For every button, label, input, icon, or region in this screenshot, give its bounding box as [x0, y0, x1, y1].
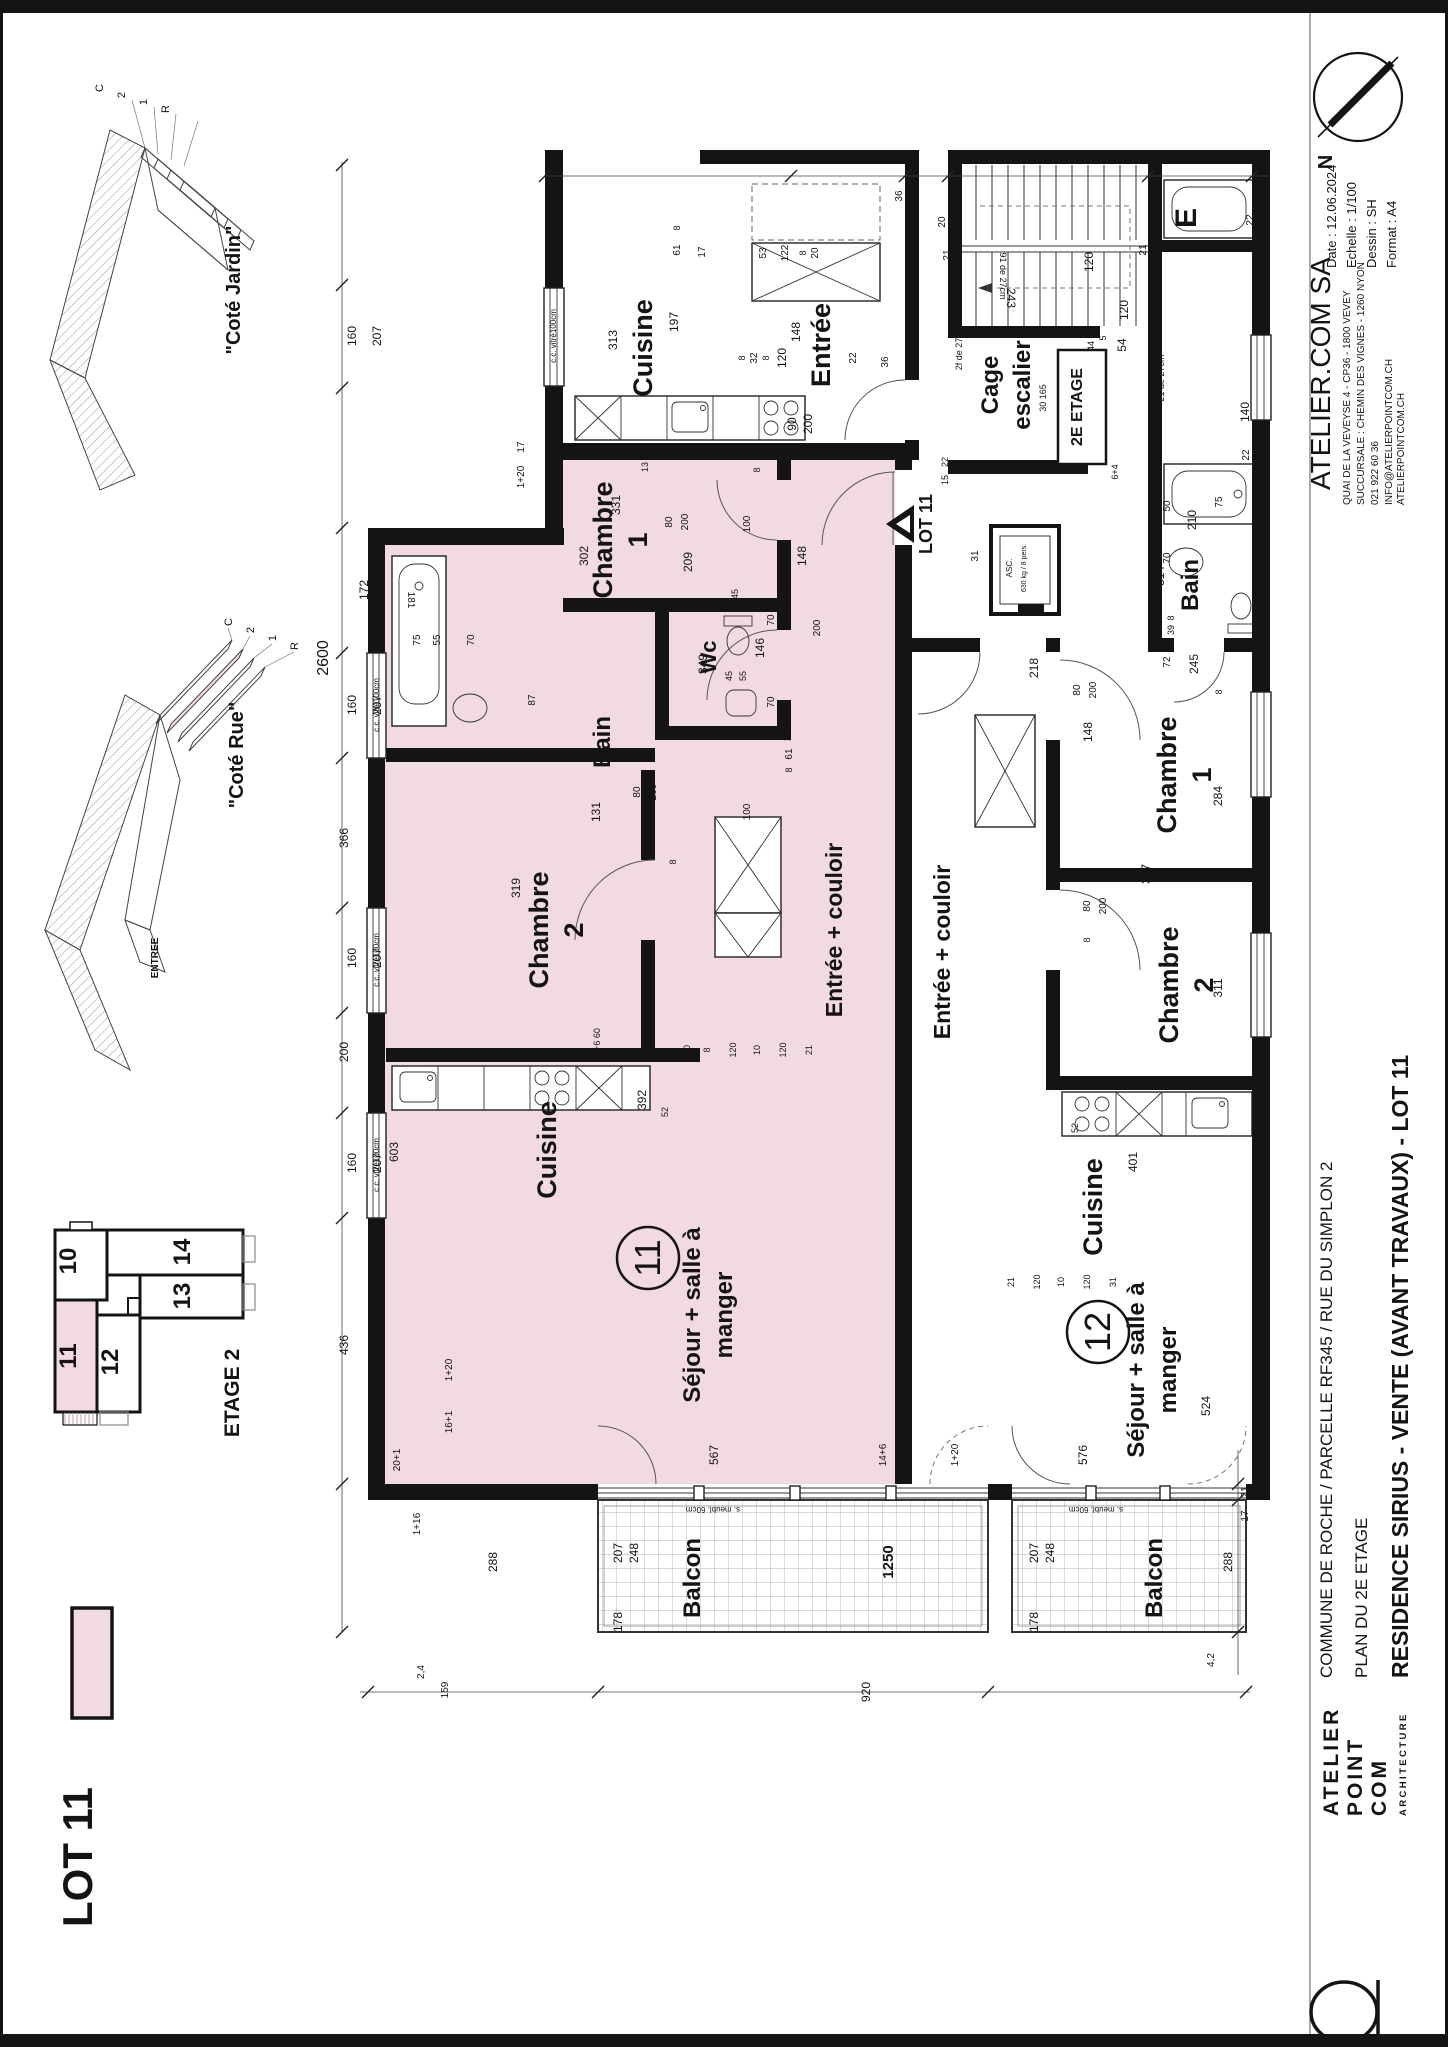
dimension-label: 70	[466, 634, 477, 646]
dimension-label: 8	[784, 767, 794, 772]
plan-note: 630 kg / 8 pers.	[1021, 544, 1028, 592]
dimension-label: 200	[801, 414, 815, 434]
dimension-label: 21	[942, 249, 953, 261]
dimension-label: 80	[632, 786, 643, 798]
drawing-scale: Echelle : 1/100	[1344, 182, 1359, 268]
dimension-label: 140	[1238, 402, 1252, 422]
dimension-label: 160	[345, 695, 359, 715]
dimension-label: 16+1	[444, 1410, 455, 1433]
dimension-label: 120	[775, 348, 789, 368]
dimension-label: 14+6	[878, 1443, 889, 1466]
dimension-label: 349	[696, 654, 710, 674]
dimension-label: 331	[609, 495, 623, 515]
dimension-label: 217	[1047, 1012, 1061, 1032]
dimension-label: 80	[1082, 900, 1093, 912]
plan-note: 30 165	[1038, 384, 1048, 412]
dimension-label: 61	[672, 244, 683, 256]
room-label: manger	[711, 1272, 738, 1359]
legend-swatch	[72, 1608, 112, 1718]
dimension-label: 54	[1115, 338, 1129, 352]
dimension-label: 8	[1214, 689, 1224, 694]
architect-logo: ATELIER POINT COM ARCHITECTURE	[1311, 1707, 1409, 2044]
room-label: manger	[1155, 1327, 1182, 1414]
dimension-label: 248	[627, 1543, 641, 1563]
dimension-label: 75	[1214, 496, 1225, 508]
dimension-label: 200	[812, 619, 823, 636]
dimension-label: 120	[1082, 1274, 1092, 1289]
dimension-label: 288	[486, 1552, 500, 1572]
lot11-pink-area	[385, 460, 895, 1484]
dimension-label: 4,2	[1206, 1653, 1217, 1667]
axon-caption-jardin: "Coté Jardin"	[223, 226, 245, 355]
dimension-label: 148	[1081, 722, 1095, 742]
kitchen-counter-lot12	[1062, 1092, 1252, 1136]
dimension-label: 2,4	[416, 1665, 427, 1679]
unit-badge-number: 11	[627, 1239, 668, 1276]
dimension-label: 22	[1241, 449, 1252, 461]
dimension-label: 17	[516, 441, 527, 453]
dimension-label: 100	[742, 515, 753, 532]
dimension-label: 80	[682, 1045, 692, 1055]
room-label: 1	[1187, 767, 1217, 782]
keyplan-label-13: 13	[169, 1283, 196, 1310]
room-label: Entrée	[806, 303, 836, 387]
dimension-label: 20	[937, 216, 948, 228]
room-label: Bain	[1177, 559, 1204, 611]
company-address1: QUAI DE LA VEVEYSE 4 - CP36 - 1800 VEVEY	[1342, 290, 1353, 505]
dimension-label: 245	[1187, 654, 1201, 674]
company-address2: SUCCURSALE : CHEMIN DES VIGNES - 1260 NY…	[1356, 262, 1367, 505]
dimension-label: 200	[1098, 897, 1109, 914]
axon-floor-label: R	[289, 642, 301, 650]
dimension-label: 36	[894, 190, 905, 202]
plan-note: ASC.	[1005, 559, 1014, 578]
dimension-label: 2600	[315, 640, 332, 676]
dimension-label: 22	[848, 352, 859, 364]
logo-line2: POINT	[1344, 1737, 1367, 1816]
room-label: Entrée + couloir	[821, 843, 847, 1018]
dimension-label: 17	[1240, 1510, 1251, 1522]
window	[1251, 933, 1271, 1037]
legend: LOT 11	[54, 1608, 112, 1927]
room-label: 1	[623, 532, 653, 547]
dimension-label: 567	[707, 1445, 721, 1465]
dimension-label: 1+20	[516, 465, 527, 488]
dimension-label: 80	[664, 516, 675, 528]
dimension-label: 8	[782, 721, 792, 726]
dimension-label: 20+1	[392, 1448, 403, 1471]
dimension-label: 311	[1211, 978, 1225, 997]
company-web: ATELIERPOINTCOM.CH	[1396, 393, 1407, 505]
dimension-label: 36	[880, 356, 891, 368]
dimension-label: 302	[577, 546, 591, 566]
keyplan-label-11: 11	[55, 1343, 82, 1368]
plan-note: 2f de 27cm	[954, 326, 964, 371]
axon-floor-label: C	[223, 618, 235, 626]
dimension-label: 22	[940, 457, 950, 467]
dimension-label: 44	[1086, 341, 1096, 351]
dimension-label: 172	[357, 580, 371, 600]
room-label: Cage	[977, 356, 1004, 415]
wardrobe-entree-top	[752, 184, 880, 301]
logo-line1: ATELIER	[1320, 1707, 1343, 1816]
dimension-label: 4+6 60	[592, 1028, 602, 1056]
title-block: ATELIER.COM SA QUAI DE LA VEVEYSE 4 - CP…	[1305, 165, 1407, 505]
plan-note: s. meubl. 60cm	[1069, 1505, 1124, 1514]
dimension-label: 17	[697, 246, 708, 258]
drawing-sheet: 2E ETAGE LOT 11 CuisineEntréeCageescalie…	[0, 0, 1448, 2047]
room-label: Chambre	[524, 871, 554, 988]
dimension-label: 22	[1148, 449, 1159, 461]
dimension-label: 20	[782, 731, 792, 741]
dimension-label: 436	[337, 1335, 351, 1355]
dimension-label: 21	[548, 466, 559, 478]
dimension-label: 248	[1043, 1543, 1057, 1563]
dimension-label: 19	[780, 462, 791, 474]
dimension-label: 45	[730, 589, 740, 599]
plan-note: 91 de 27cm	[998, 252, 1008, 299]
dimension-label: 70	[766, 614, 777, 626]
dimension-label: 207	[611, 1543, 625, 1563]
dimension-label: 90	[785, 417, 799, 431]
room-label: Chambre	[1154, 926, 1184, 1043]
dimension-label: 87	[527, 694, 538, 706]
axon-floor-label: 1	[267, 635, 279, 641]
dimension-label: 200	[648, 783, 659, 800]
project-location: COMMUNE DE ROCHE / PARCELLE RF345 / RUE …	[1317, 1162, 1336, 1678]
axon-floor-label: R	[160, 105, 172, 113]
dimension-label: 8	[1166, 615, 1176, 620]
room-label: Bain	[589, 716, 616, 768]
dimension-label: 1+20	[444, 1358, 455, 1381]
toilet-bain-lot12	[1228, 593, 1254, 633]
legend-label: LOT 11	[54, 1787, 101, 1927]
dimension-label: 207	[370, 326, 384, 346]
room-label: Balcon	[1141, 1538, 1168, 1618]
axon-floor-label: 1	[138, 99, 150, 105]
room-label: Balcon	[679, 1538, 706, 1618]
dimension-label: 178	[1027, 1612, 1041, 1632]
axon-cote-jardin: "Coté Jardin"	[50, 100, 254, 490]
dimension-label: 8	[798, 250, 808, 255]
dimension-label: 120	[1032, 1274, 1042, 1289]
axon-floor-label: C	[94, 84, 106, 92]
axon-entry-label: ENTREE	[150, 937, 161, 978]
room-label: escalier	[1009, 340, 1036, 429]
keyplan-label-14: 14	[169, 1238, 196, 1265]
logo-line3: COM	[1368, 1758, 1391, 1816]
dimension-label: 52	[660, 1107, 670, 1117]
room-label: Cuisine	[628, 299, 658, 397]
dimension-label: 387	[1139, 864, 1153, 884]
dimension-label: 120	[1117, 300, 1131, 320]
dimension-label: 576	[1076, 1445, 1090, 1465]
unit-badge-number: 12	[1077, 1312, 1118, 1352]
dimension-label: 39	[1166, 625, 1176, 635]
dimension-label: 8	[752, 467, 762, 472]
stair-level-label: 2E ETAGE	[1069, 368, 1086, 446]
kitchen-counter-top	[575, 396, 805, 440]
north-arrow: N	[1314, 53, 1402, 169]
balcony-glazing	[598, 1486, 1246, 1500]
dimension-label: 920	[859, 1682, 873, 1702]
dimension-label: 200	[680, 513, 691, 530]
dimension-label: 21	[804, 1045, 814, 1055]
project-plan-name: PLAN DU 2E ETAGE	[1352, 1518, 1371, 1678]
dimension-label: 1+16	[412, 1512, 423, 1535]
dimension-label: 313	[606, 330, 620, 350]
room-label: Séjour + salle à	[1123, 1282, 1150, 1458]
dimension-label: 8	[782, 585, 792, 590]
dimension-label: 80	[1072, 684, 1083, 696]
dimension-label: 131	[589, 802, 603, 822]
dimension-label: 31	[970, 550, 981, 562]
window-label: c.c. vitré100cm	[372, 1138, 381, 1192]
project-main-title: RESIDENCE SIRIUS - VENTE (AVANT TRAVAUX)…	[1387, 1055, 1413, 1678]
company-name: ATELIER.COM SA	[1305, 257, 1336, 490]
company-phone: 021 922 60 36	[1370, 441, 1381, 505]
room-label: Entrée + couloir	[929, 865, 955, 1040]
dimension-label: 10	[752, 1045, 762, 1055]
dimension-label: 1250	[880, 1545, 897, 1578]
dimension-label: 55	[432, 634, 443, 646]
dimension-label: 120	[728, 1042, 738, 1057]
dimension-label: 22	[1245, 214, 1256, 226]
dimension-label: 524	[1199, 1396, 1213, 1416]
room-label: Cuisine	[1078, 1158, 1108, 1256]
company-email: INFO@ATELIERPOINTCOM.CH	[1384, 359, 1395, 505]
axon-caption-rue: "Coté Rue"	[226, 702, 248, 809]
drawing-format: Format : A4	[1384, 201, 1399, 268]
dimension-label: 55	[738, 671, 748, 681]
window	[1251, 692, 1271, 797]
plan-note: s. meubl. 60cm	[686, 1505, 741, 1514]
dimension-label: 100	[742, 803, 753, 820]
window-label: c.c. vitré100cm	[372, 678, 381, 732]
dimension-label: 20	[810, 247, 821, 259]
dimension-label: 41	[782, 595, 792, 605]
logo-circle-icon	[1311, 1982, 1377, 2042]
dimension-label: 401	[1126, 1152, 1140, 1172]
dimension-label: 31	[1108, 1277, 1118, 1287]
dimension-label: 32	[749, 352, 760, 364]
dimension-label: 122	[780, 244, 791, 261]
dimension-label: 5	[1098, 335, 1108, 340]
wardrobe-entree-lot12	[975, 715, 1035, 827]
room-label: E	[1170, 208, 1203, 228]
svg-text:LOT 11: LOT 11	[916, 494, 936, 554]
floor-plan-drawing: 2E ETAGE LOT 11 CuisineEntréeCageescalie…	[0, 0, 1448, 2047]
window-label: c.c. vitré100cm	[549, 309, 558, 363]
dimension-label: 8	[672, 225, 682, 230]
dimension-label: 200	[1088, 681, 1099, 698]
bathtub-lot12	[1164, 464, 1254, 524]
dimension-label: 8	[702, 1047, 712, 1052]
dimension-label: 603	[387, 1142, 401, 1162]
room-label: 2	[559, 922, 589, 937]
dimension-label: 319	[509, 878, 523, 898]
dimension-label: 21	[1138, 244, 1149, 256]
dimension-label: 207	[1027, 1543, 1041, 1563]
dimension-label: 1+20	[950, 1443, 961, 1466]
dimension-label: 148	[789, 322, 803, 342]
dimension-label: 45	[724, 671, 734, 681]
drawing-author: Dessin : SH	[1364, 199, 1379, 268]
keyplan-title: ETAGE 2	[221, 1349, 244, 1437]
dimension-label: 6+4	[1110, 464, 1120, 479]
dimension-label: 120	[1082, 252, 1096, 272]
dimension-label: 314	[1153, 566, 1167, 586]
dimension-label: 53	[758, 247, 769, 259]
axon-cote-rue: "Coté Rue" ENTREE	[45, 628, 294, 1070]
dimension-label: 8	[737, 355, 747, 360]
dimension-label: 160	[345, 1153, 359, 1173]
dimension-label: 160	[345, 948, 359, 968]
kitchen-counter-lot11	[392, 1066, 650, 1110]
dimension-label: 70	[1162, 552, 1173, 564]
room-label: Séjour + salle à	[679, 1227, 706, 1403]
dimension-label: 159	[440, 1681, 451, 1698]
dimension-label: 197	[667, 312, 681, 332]
window	[1251, 335, 1271, 420]
keyplan-label-10: 10	[55, 1248, 82, 1275]
stair-direction-arrow	[978, 283, 992, 293]
dimension-label: 284	[1211, 786, 1225, 806]
dimension-label: 366	[337, 828, 351, 848]
dimension-label: 210	[1185, 510, 1199, 530]
logo-architecture: ARCHITECTURE	[1398, 1712, 1409, 1816]
dimension-label: 8	[668, 859, 678, 864]
axon-floor-label: 2	[245, 627, 257, 633]
dimension-label: 21	[1006, 1277, 1016, 1287]
dimension-label: 52	[1070, 1123, 1080, 1133]
dimension-label: 178	[611, 1612, 625, 1632]
dimension-label: 200	[337, 1042, 351, 1062]
compass-needle-icon	[1330, 63, 1392, 125]
dimension-label: 120	[778, 1042, 788, 1057]
dimension-label: 160	[345, 326, 359, 346]
window-label: c.c. vitré100cm	[372, 933, 381, 987]
dimension-label: 72	[1162, 656, 1173, 668]
dimension-label: 181	[405, 592, 416, 609]
closet-corridor-lot11	[715, 817, 781, 957]
plan-note: 21 de 27cm	[1156, 354, 1166, 401]
dimension-label: 75	[412, 634, 423, 646]
dimension-label: 13	[640, 462, 650, 472]
drawing-date: Date : 12.06.2024	[1324, 165, 1339, 268]
dimension-label: 288	[1221, 1552, 1235, 1572]
project-title: COMMUNE DE ROCHE / PARCELLE RF345 / RUE …	[1317, 1055, 1413, 1678]
dimension-label: 8	[761, 355, 771, 360]
dimension-label: 209	[681, 552, 695, 572]
dimension-label: 146	[753, 638, 767, 658]
room-label: Chambre	[1152, 716, 1182, 833]
dimension-label: 50	[1162, 500, 1173, 512]
dimension-label: 70	[766, 696, 777, 708]
keyplan-label-12: 12	[97, 1349, 124, 1376]
dimension-label: 8	[1082, 937, 1092, 942]
dimension-label: 61	[784, 748, 795, 760]
dimension-label: 10	[1056, 1277, 1066, 1287]
dimension-label: 15	[940, 475, 950, 485]
dimension-label: 218	[1027, 658, 1041, 678]
room-label: Cuisine	[532, 1101, 562, 1199]
axon-floor-label: 2	[116, 92, 128, 98]
dimension-label: 148	[795, 546, 809, 566]
dimension-label: 392	[635, 1090, 649, 1110]
